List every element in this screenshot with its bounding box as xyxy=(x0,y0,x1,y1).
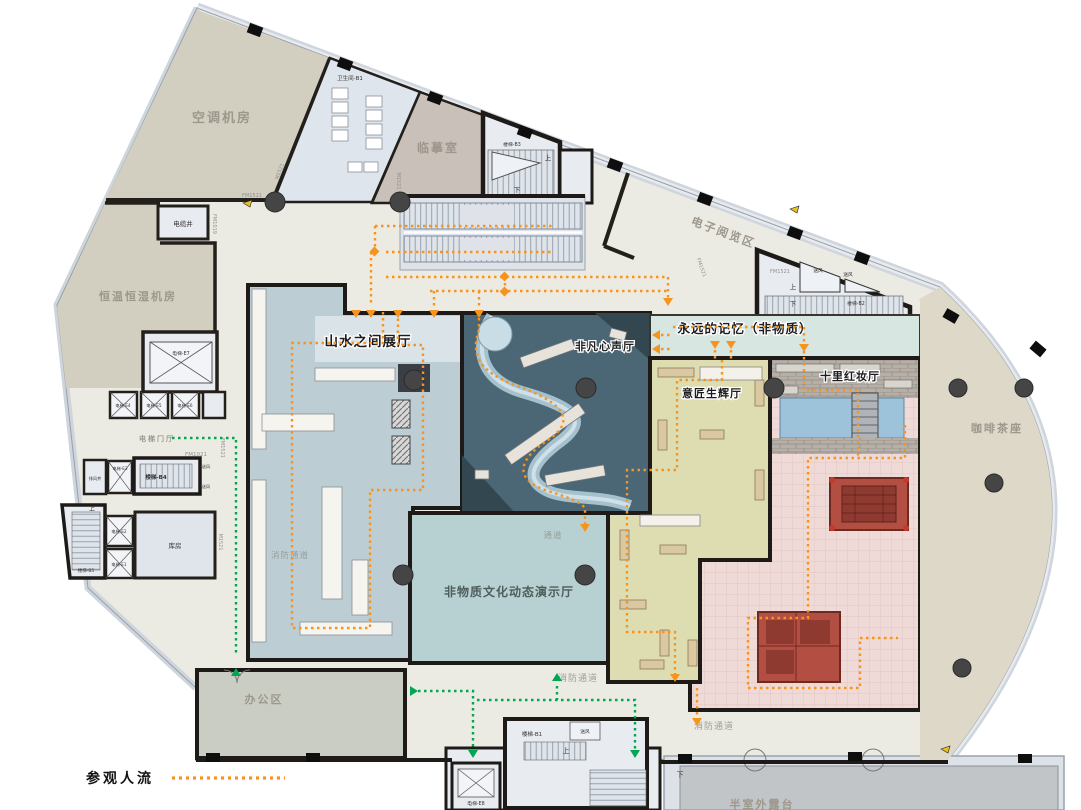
red-room-suite xyxy=(758,612,840,682)
elevator-e6: 电梯-E6 xyxy=(172,392,199,418)
copy-room-label: 临摹室 xyxy=(417,140,459,155)
stair-b4-cluster: 排风井 电梯-E3 楼梯-B4 送风 送风 xyxy=(84,458,211,494)
elevator-e7-label: 电梯-E7 xyxy=(172,350,189,357)
counter xyxy=(640,515,700,526)
shaft-cell xyxy=(203,392,225,418)
stair-b3: 楼梯-B3 上 下 xyxy=(483,113,592,203)
elevator-e7: 电梯-E7 xyxy=(143,332,217,392)
office-area: 办公区 xyxy=(197,670,405,758)
cable-shaft: 电缆井 FM1019 xyxy=(158,206,217,239)
hall-feifan: 非凡心声厅 xyxy=(462,313,650,513)
elevator-row: 电梯-E4 电梯-E5 电梯-E6 xyxy=(110,392,225,418)
air-supply-label: 送风 xyxy=(202,483,211,490)
floor-plan: 半室外露台 空调机房 恒温恒湿机房 电缆井 FM1019 卫生间-B1 临摹室 xyxy=(0,0,1081,810)
door-label-fm1521: FM1521 xyxy=(242,193,262,199)
storage-room: 库房 xyxy=(135,512,215,578)
elevator-e8: 电梯-E8 xyxy=(452,763,500,810)
elevator-e2: 电梯-E2 xyxy=(106,516,133,546)
elevator-e2-label: 电梯-E2 xyxy=(111,528,127,535)
stair-b4-label: 楼梯-B4 xyxy=(145,473,166,481)
hall-demo: 非物质文化动态演示厅 通道 xyxy=(410,513,608,663)
coffee-area: 咖啡茶座 xyxy=(918,287,1052,760)
hatched-plinth xyxy=(392,400,410,428)
stair-b3-label: 楼梯-B3 xyxy=(503,141,521,148)
elevator-e5-label: 电梯-E5 xyxy=(146,402,162,409)
hvac-room-label: 恒温恒湿机房 xyxy=(99,289,177,303)
feifan-label: 非凡心声厅 xyxy=(575,339,635,353)
air-supply-label: 送风 xyxy=(843,271,853,278)
elevator-e6-label: 电梯-E6 xyxy=(177,402,193,409)
door-label-m1521: M1521 xyxy=(395,172,401,189)
terrace-label: 半室外露台 xyxy=(730,797,795,810)
up-mark: 上 xyxy=(89,505,95,513)
elevator-e8-label: 电梯-E8 xyxy=(467,800,484,807)
cable-shaft-label: 电缆井 xyxy=(173,219,193,228)
hatched-plinth xyxy=(392,436,410,464)
shanshui-label: 山水之间展厅 xyxy=(325,333,412,350)
escalators xyxy=(400,196,585,270)
demo-label: 非物质文化动态演示厅 xyxy=(444,584,574,599)
memory-band: 永远的记忆（非物质） xyxy=(650,315,920,358)
stair-b2-label: 楼梯-B2 xyxy=(847,300,865,307)
floor-plan-canvas: 半室外露台 空调机房 恒温恒湿机房 电缆井 FM1019 卫生间-B1 临摹室 xyxy=(0,0,1081,810)
door-label-fm1521: FM1521 xyxy=(770,269,790,275)
yijiang-label: 意匠生辉厅 xyxy=(682,386,742,400)
elevator-e4: 电梯-E4 xyxy=(110,392,137,418)
up-mark: 上 xyxy=(790,282,797,291)
air-supply-label: 送风 xyxy=(580,728,590,735)
legend: 参观人流 xyxy=(86,770,285,787)
memory-label: 永远的记忆（非物质） xyxy=(676,321,812,336)
coffee-label: 咖啡茶座 xyxy=(971,421,1023,435)
red-pavilion xyxy=(829,477,909,531)
stair-b5: 楼梯-B5 上 xyxy=(62,505,105,578)
bridge xyxy=(852,393,878,443)
office-label: 办公区 xyxy=(245,692,284,706)
elevator-e1-label: 电梯-E1 xyxy=(111,561,127,568)
fire-passage-label: 消防通道 xyxy=(271,550,309,561)
elevator-e1: 电梯-E1 xyxy=(106,549,133,578)
door-label-m1521: M1521 xyxy=(217,533,223,550)
legend-visitor-flow-label: 参观人流 xyxy=(86,770,154,787)
stair-b5-label: 楼梯-B5 xyxy=(78,567,95,574)
stair-b4: 楼梯-B4 送风 送风 xyxy=(134,458,211,494)
terrace: 半室外露台 xyxy=(664,749,1064,810)
counter xyxy=(700,367,762,380)
exhaust-shaft-label: 排风井 xyxy=(89,475,102,482)
toilet-label: 卫生间-B1 xyxy=(337,74,363,82)
down-mark: 下 xyxy=(790,300,797,308)
fire-passage-label: 消防通道 xyxy=(558,672,598,684)
elevator-e3: 电梯-E3 xyxy=(108,461,132,493)
up-mark: 上 xyxy=(545,153,552,162)
ac-room-label: 空调机房 xyxy=(192,110,252,126)
elevator-e5: 电梯-E5 xyxy=(141,392,168,418)
shili-label: 十里红妆厅 xyxy=(820,369,880,383)
down-mark: 下 xyxy=(677,771,684,779)
down-mark: 下 xyxy=(514,186,521,194)
fire-passage-label: 消防通道 xyxy=(694,720,734,732)
passage-label: 通道 xyxy=(543,530,562,541)
door-label-fm1521: FM1521 xyxy=(219,438,225,458)
pond xyxy=(478,317,512,351)
stair-b1-label: 楼梯-B1 xyxy=(522,730,542,738)
water-pool xyxy=(780,398,904,438)
door-label-fm1019: FM1019 xyxy=(211,214,217,234)
elevator-lobby-label: 电梯门厅 xyxy=(139,434,175,443)
elevator-e4-label: 电梯-E4 xyxy=(115,402,131,409)
air-supply-label: 送风 xyxy=(813,267,823,274)
brick-paving xyxy=(772,438,918,454)
storage-label: 库房 xyxy=(169,541,182,550)
air-supply-label: 送风 xyxy=(202,463,211,470)
elevator-e3-label: 电梯-E3 xyxy=(112,465,128,472)
up-mark: 上 xyxy=(563,746,570,755)
